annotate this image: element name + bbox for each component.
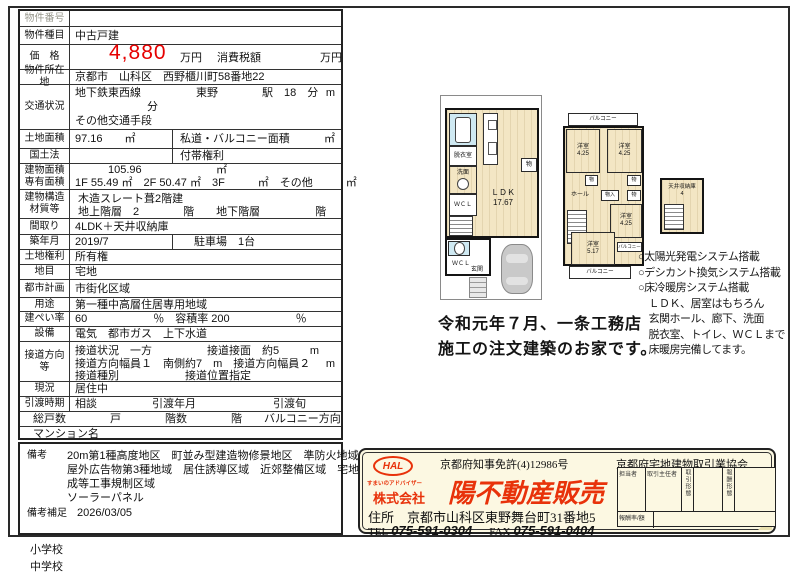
staff-cell-blank2: [735, 468, 776, 512]
kitchen-counter: [483, 113, 498, 165]
transport-row: 交通状況 地下鉄東西線 東野 駅 18 分 m 分 その他交通手段: [20, 85, 341, 130]
staff-cell-hoshu: 報酬形態: [723, 468, 735, 512]
1f-wcl: ＷＣＬ: [449, 194, 477, 216]
car-windshield: [506, 254, 528, 263]
2f-building: 洋室4.25 洋室4.25 物 物入 物 物 ホール 洋室4.25: [563, 126, 644, 266]
attic-label: 天井収納庫4: [665, 184, 699, 198]
land-area-value: 97.16 ㎡: [75, 133, 136, 146]
city-plan-row: 都市計画 市街化区域: [20, 280, 341, 298]
row-label: 建物面積 専有面積: [20, 164, 70, 189]
1f-bathroom: [449, 113, 477, 146]
car-rear-window: [506, 277, 528, 285]
staff-table: 担当者 取引主任者 取引形態 報酬形態 報酬率/額: [617, 467, 776, 527]
2f-balcony-bottom: バルコニー: [569, 266, 631, 279]
hal-logo-icon: HAL: [373, 456, 413, 476]
transport-line3: その他交通手段: [75, 115, 152, 128]
junior-high-label: 中学校: [30, 558, 63, 574]
coverage-row: 建ぺい率 60 ％ 容積率 200 ％: [20, 312, 341, 327]
road-line1: 接道状況 一方 接道接面 約5: [75, 345, 279, 358]
zoning-value: 第一種中高層住居専用地域: [75, 299, 207, 312]
row-label: 交通状況: [20, 85, 70, 129]
handover-row: 引渡時期 相談 引渡年月 引渡旬: [20, 397, 341, 412]
current-status-row: 現況 居住中: [20, 382, 341, 397]
floorplan-2f: バルコニー 洋室4.25 洋室4.25 物 物入 物 物 ホール 洋室4.: [562, 113, 646, 281]
row-label: 建物構造 材質等: [20, 190, 70, 218]
1f-toilet: [448, 241, 470, 256]
coverage-value: 60 ％ 容積率 200 ％: [75, 313, 307, 326]
row-label: 土地面積: [20, 130, 70, 148]
utilities-value: 電気 都市ガス 上下水道: [75, 328, 207, 341]
road-line1-unit: m: [310, 345, 319, 358]
car-icon: [501, 244, 533, 294]
building-area-row: 建物面積 専有面積 105.96 ㎡ 1F 55.49 ㎡ 2F 50.47 ㎡…: [20, 164, 341, 190]
elementary-school-label: 小学校: [30, 541, 63, 557]
company-phone: TEL 075-591-0304 FAX 075-591-0404: [368, 523, 595, 538]
row-label: 国土法: [20, 149, 70, 163]
land-right-value: 所有権: [75, 251, 108, 264]
1f-dressing-room: 脱衣室: [449, 146, 477, 166]
table-row: 物件所在地 京都市 山科区 西野櫃川町58番地22: [20, 70, 341, 85]
remarks-text: 20m第1種高度地区 町並み型建造物修景地区 準防火地域屋外広告物第3種地域 居…: [67, 449, 370, 505]
private-road-label: 私道・バルコニー面積: [180, 133, 290, 146]
tax-label: 消費税額: [217, 52, 261, 65]
features-list: ○太陽光発電システム搭載○デシカント換気システム搭載○床冷暖房システム搭載 ＬＤ…: [638, 250, 796, 359]
staff-cell-torihiki: 取引形態: [682, 468, 694, 512]
floorplan-attic: 天井収納庫4: [660, 178, 704, 234]
bathtub-icon: [455, 117, 471, 143]
staff-cell-blank1: [694, 468, 723, 512]
parking-value: 駐車場 1台: [194, 236, 255, 249]
ldk-label: ＬＤＫ17.67: [491, 188, 515, 208]
row-label: 物件種目: [20, 27, 70, 44]
fax-number: 075-591-0404: [514, 523, 595, 538]
tax-unit: 万円: [320, 52, 342, 65]
land-category-row: 地目 宅地: [20, 265, 341, 280]
license-number: 京都府知事免許(4)12986号: [440, 456, 568, 472]
remarks-note-label: 備考補足: [27, 507, 67, 520]
entrance-steps: [469, 277, 487, 298]
row-label: 地目: [20, 265, 70, 279]
2f-closet-a: 物: [585, 175, 598, 186]
1f-wcl2-label: ＷＣＬ: [452, 261, 470, 268]
land-right-row: 土地権利 所有権: [20, 250, 341, 265]
tel-number: 075-591-0304: [391, 523, 472, 538]
main-caption: 令和元年７月、一条工務店施工の注文建築のお家です。: [438, 312, 657, 362]
2f-closet-b: 物: [627, 175, 641, 186]
1f-closet: 物: [521, 158, 537, 172]
genkan-label: 玄関: [471, 267, 483, 274]
layout-value: 4LDK＋天井収納庫: [75, 221, 169, 234]
company-box: 京都府知事免許(4)12986号 京都府宅地建物取引業協会 HAL すまいのアド…: [358, 448, 776, 534]
total-units-row: 総戸数 戸 階数 階 バルコニー方向: [20, 412, 341, 427]
row-label: 間取り: [20, 219, 70, 234]
structure-row: 建物構造 材質等 木造スレート葺2階建 地上階層 2 階 地下階層 階: [20, 190, 341, 219]
land-category-value: 宅地: [75, 266, 97, 279]
1f-entrance-block: ＷＣＬ 玄関: [445, 238, 491, 276]
transport-m-unit: m: [326, 87, 335, 100]
transport-line2: 分: [147, 101, 158, 114]
current-status-value: 居住中: [75, 383, 108, 396]
2f-bedroom2: 洋室4.25: [607, 129, 642, 173]
remarks-note-value: 2026/03/05: [77, 507, 132, 520]
kokudo-row: 国土法 付帯権利: [20, 149, 341, 164]
land-area-row: 土地面積 97.16 ㎡ 私道・バルコニー面積 ㎡: [20, 130, 341, 149]
road-line2-unit: m: [326, 358, 335, 371]
remarks-box: 備考 20m第1種高度地区 町並み型建造物修景地区 準防火地域屋外広告物第3種地…: [18, 442, 343, 535]
logo-tagline: すまいのアドバイザー: [367, 479, 422, 487]
row-label: 接道方向等: [20, 342, 70, 381]
row-label: 物件番号: [20, 11, 70, 26]
futai-kenri-label: 付帯権利: [180, 150, 224, 163]
price-amount: 4,880: [109, 46, 167, 59]
staff-cell-shunin: 取引主任者: [646, 468, 682, 512]
staff-cell-tantou: 担当者: [618, 468, 646, 512]
row-label: 土地権利: [20, 250, 70, 264]
layout-row: 間取り 4LDK＋天井収納庫: [20, 219, 341, 235]
row-label: 都市計画: [20, 280, 70, 297]
sink-icon: [488, 142, 497, 155]
building-area-unit: ㎡: [216, 164, 227, 177]
row-label: 設備: [20, 327, 70, 341]
built-year-row: 築年月 2019/7 駐車場 1台: [20, 235, 341, 250]
staff-cell-rate: 報酬率/額: [618, 512, 654, 528]
staff-cell-rate-blank: [654, 512, 776, 528]
table-row: 物件番号: [20, 11, 341, 27]
floorplan-1f: 脱衣室 洗面 ＷＣＬ 物 ＬＤＫ17.67: [440, 95, 542, 300]
structure-value: 木造スレート葺2階建: [78, 193, 183, 206]
row-label: 築年月: [20, 235, 70, 249]
toilet-icon: [454, 242, 465, 255]
attic-stairs: [664, 204, 684, 230]
row-label: 建ぺい率: [20, 312, 70, 326]
washer-icon: [457, 178, 469, 190]
zoning-row: 用途 第一種中高層住居専用地域: [20, 298, 341, 312]
1f-washroom: 洗面: [449, 166, 477, 194]
row-label: 用途: [20, 298, 70, 311]
mansion-name-row: マンション名: [20, 427, 341, 442]
city-plan-value: 市街化区域: [75, 283, 130, 296]
company-name: 陽不動産販売: [448, 473, 604, 510]
row-label: 物件所在地: [20, 70, 70, 84]
2f-bedroom4: 洋室5.17: [571, 232, 615, 265]
row-label: 引渡時期: [20, 397, 70, 411]
row-label: 現況: [20, 382, 70, 396]
utilities-row: 設備 電気 都市ガス 上下水道: [20, 327, 341, 342]
2f-hall-label: ホール: [571, 192, 589, 199]
transport-line1: 地下鉄東西線 東野 駅 18 分: [75, 87, 318, 100]
company-kabushiki: 株式会社: [373, 488, 425, 507]
road-access-row: 接道方向等 接道状況 一方 接道接面 約5 m 接道方向幅員１ 南側約7 m 接…: [20, 342, 341, 382]
handover-value: 相談 引渡年月 引渡旬: [75, 398, 306, 411]
built-year-value: 2019/7: [75, 236, 109, 249]
2f-bedroom1: 洋室4.25: [566, 129, 600, 173]
land-area-unit: ㎡: [324, 133, 335, 146]
total-units-value: 総戸数 戸 階数 階 バルコニー方向: [33, 413, 341, 426]
1f-building: 脱衣室 洗面 ＷＣＬ 物 ＬＤＫ17.67: [445, 108, 539, 238]
1f-stairs: [449, 216, 473, 236]
property-table: 物件番号 物件種目 中古戸建 価 格 4,880 万円 消費税額 万円 物件所在…: [18, 9, 343, 440]
property-flyer: 物件番号 物件種目 中古戸建 価 格 4,880 万円 消費税額 万円 物件所在…: [0, 0, 800, 577]
address-value: 京都市 山科区 西野櫃川町58番地22: [75, 71, 264, 84]
stove-icon: [488, 120, 497, 130]
mansion-name-label: マンション名: [33, 428, 99, 441]
2f-closet-c: 物: [627, 190, 641, 201]
2f-closet-in: 物入: [601, 190, 619, 201]
price-unit: 万円: [180, 52, 202, 65]
floor-areas-value: 1F 55.49 ㎡ 2F 50.47 ㎡ 3F ㎡ その他 ㎡: [75, 177, 357, 190]
floors-value: 地上階層 2 階 地下階層 階: [78, 206, 326, 219]
table-row: 物件種目 中古戸建: [20, 27, 341, 45]
remarks-label: 備考: [27, 449, 47, 462]
2f-balcony-top: バルコニー: [568, 113, 638, 126]
building-area-value: 105.96: [108, 164, 142, 177]
